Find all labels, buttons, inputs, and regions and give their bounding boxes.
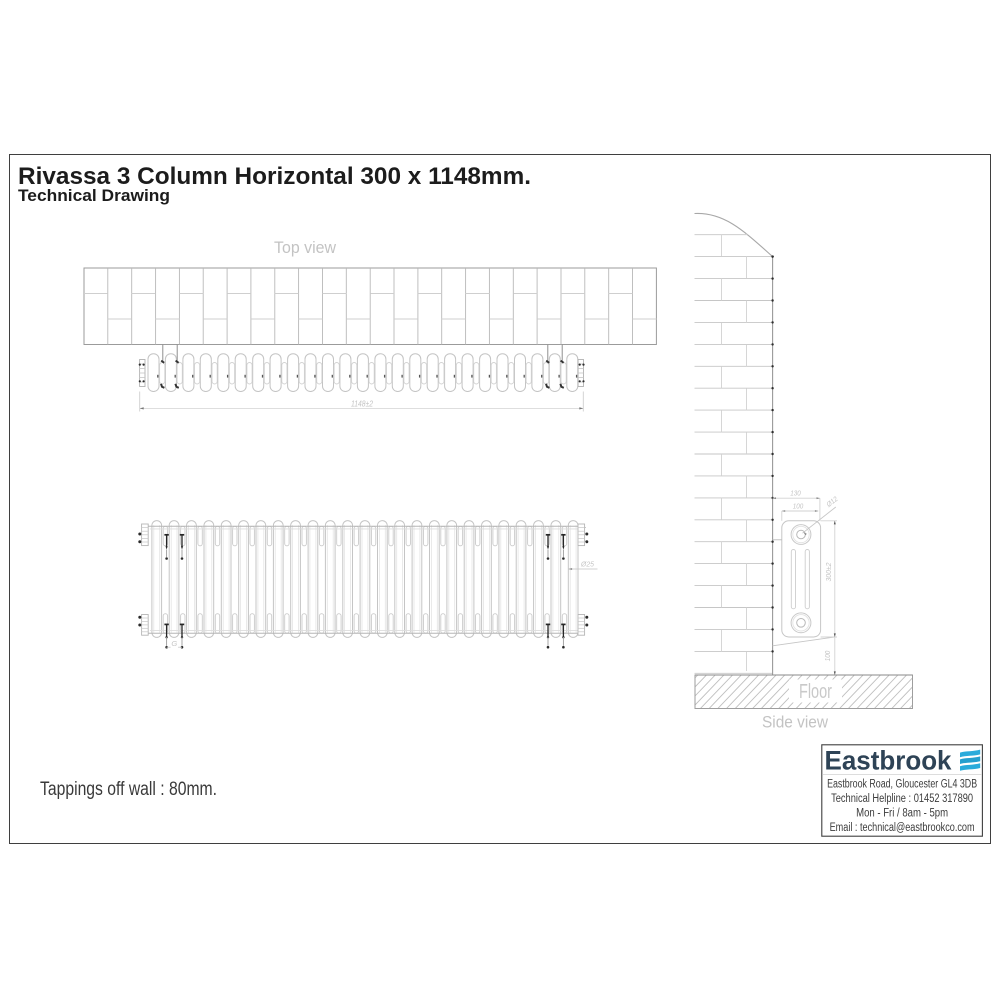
svg-text:300±2: 300±2 [826,562,833,581]
svg-text:Rivassa 3 Column Horizontal 30: Rivassa 3 Column Horizontal 300 x 1148mm… [18,163,531,190]
svg-text:Email : technical@eastbrookco.: Email : technical@eastbrookco.com [830,822,975,834]
svg-text:Technical Drawing: Technical Drawing [18,187,170,205]
svg-text:Eastbrook: Eastbrook [825,746,952,776]
svg-text:Ø25: Ø25 [580,559,595,568]
svg-text:100: 100 [793,503,804,510]
svg-text:Floor: Floor [799,681,832,703]
svg-text:130: 130 [790,490,801,497]
svg-text:Tappings off wall : 80mm.: Tappings off wall : 80mm. [40,779,217,800]
svg-text:Technical Helpline : 01452 317: Technical Helpline : 01452 317890 [831,793,973,805]
svg-text:100: 100 [825,651,832,662]
svg-text:Ø12: Ø12 [825,496,840,510]
svg-text:Top view: Top view [274,238,337,257]
svg-text:Eastbrook Road, Gloucester GL4: Eastbrook Road, Gloucester GL4 3DB [827,779,977,791]
svg-text:Side view: Side view [762,713,829,732]
svg-text:1148±2: 1148±2 [351,398,373,408]
svg-text:Mon - Fri / 8am - 5pm: Mon - Fri / 8am - 5pm [856,808,948,820]
svg-text:G: G [171,639,177,648]
